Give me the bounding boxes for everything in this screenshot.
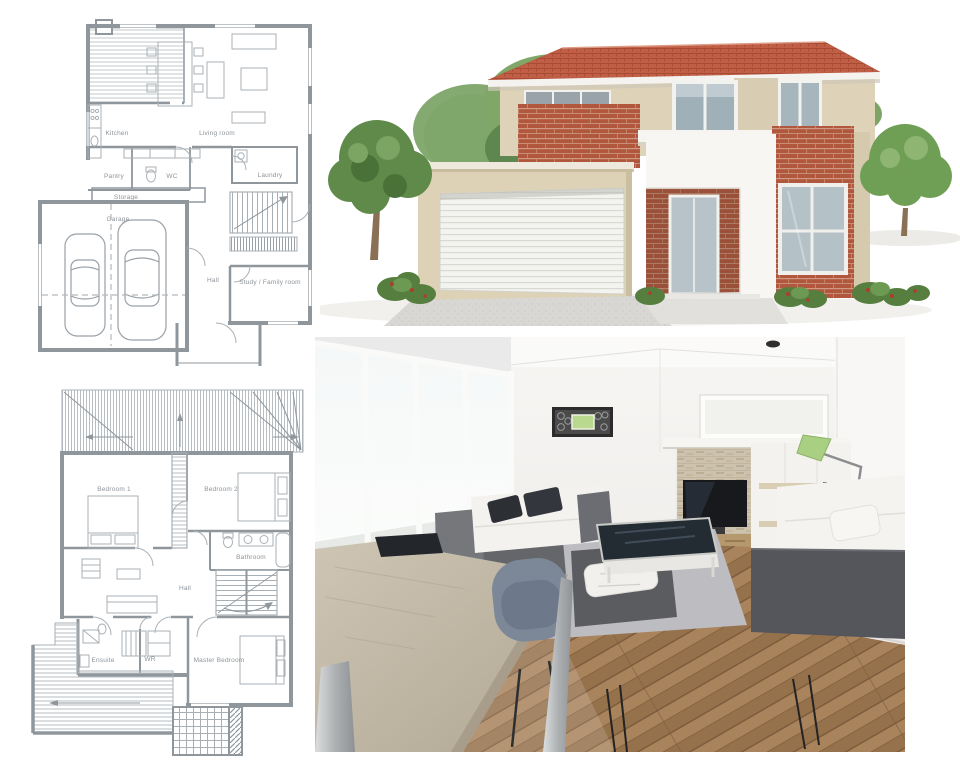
- room-label-laundry: Laundry: [258, 172, 283, 179]
- garage-cars: [42, 204, 185, 346]
- deck-terrace: [88, 20, 184, 103]
- lower-window: [778, 183, 848, 275]
- room-label-living-room: Living room: [199, 130, 235, 137]
- table-object: [375, 533, 443, 557]
- balcony: [173, 707, 242, 755]
- room-label-bathroom: Bathroom: [236, 554, 266, 561]
- wall-art: [552, 407, 613, 437]
- room-label-study: Study / Family room: [239, 279, 301, 286]
- high-window: [700, 395, 828, 439]
- room-label-hall2: Hall: [179, 585, 191, 592]
- room-label-bedroom1: Bedroom 1: [97, 486, 131, 493]
- stairs: [216, 570, 277, 615]
- house-exterior-render: [320, 8, 960, 330]
- door-arcs: [93, 501, 217, 637]
- room-label-kitchen: Kitchen: [105, 130, 128, 137]
- deck: [33, 623, 173, 733]
- wardrobe-wall: [172, 453, 187, 548]
- stairs: [230, 192, 297, 251]
- room-label-hall: Hall: [207, 277, 219, 284]
- room-label-ensuite: Ensuite: [91, 657, 114, 664]
- table-leg-left: [315, 661, 355, 752]
- room-label-master-bedroom: Master Bedroom: [194, 657, 245, 664]
- garage-door: [440, 188, 624, 294]
- room-label-bedroom2: Bedroom 2: [204, 486, 238, 493]
- room-label-pantry: Pantry: [104, 173, 125, 180]
- upper-brick-wall: [518, 104, 640, 168]
- house-plan-collage: Kitchen Living room Pantry WC Laundry St…: [0, 0, 960, 777]
- room-label-garage: Garage: [107, 216, 130, 223]
- room-label-wc: WC: [166, 173, 177, 180]
- second-floor-plan: Bedroom 1 Bedroom 2 Bathroom Hall Ensuit…: [25, 383, 310, 761]
- room-label-storage: Storage: [114, 194, 138, 201]
- living-room-photo: [315, 337, 905, 752]
- roof-section: [62, 390, 303, 452]
- entry-portal: [642, 134, 776, 310]
- room-label-wr: WR: [144, 656, 155, 663]
- ceiling-spot: [766, 341, 780, 348]
- house-body: [416, 42, 880, 310]
- garage: [416, 162, 634, 300]
- first-floor-plan: Kitchen Living room Pantry WC Laundry St…: [20, 8, 320, 373]
